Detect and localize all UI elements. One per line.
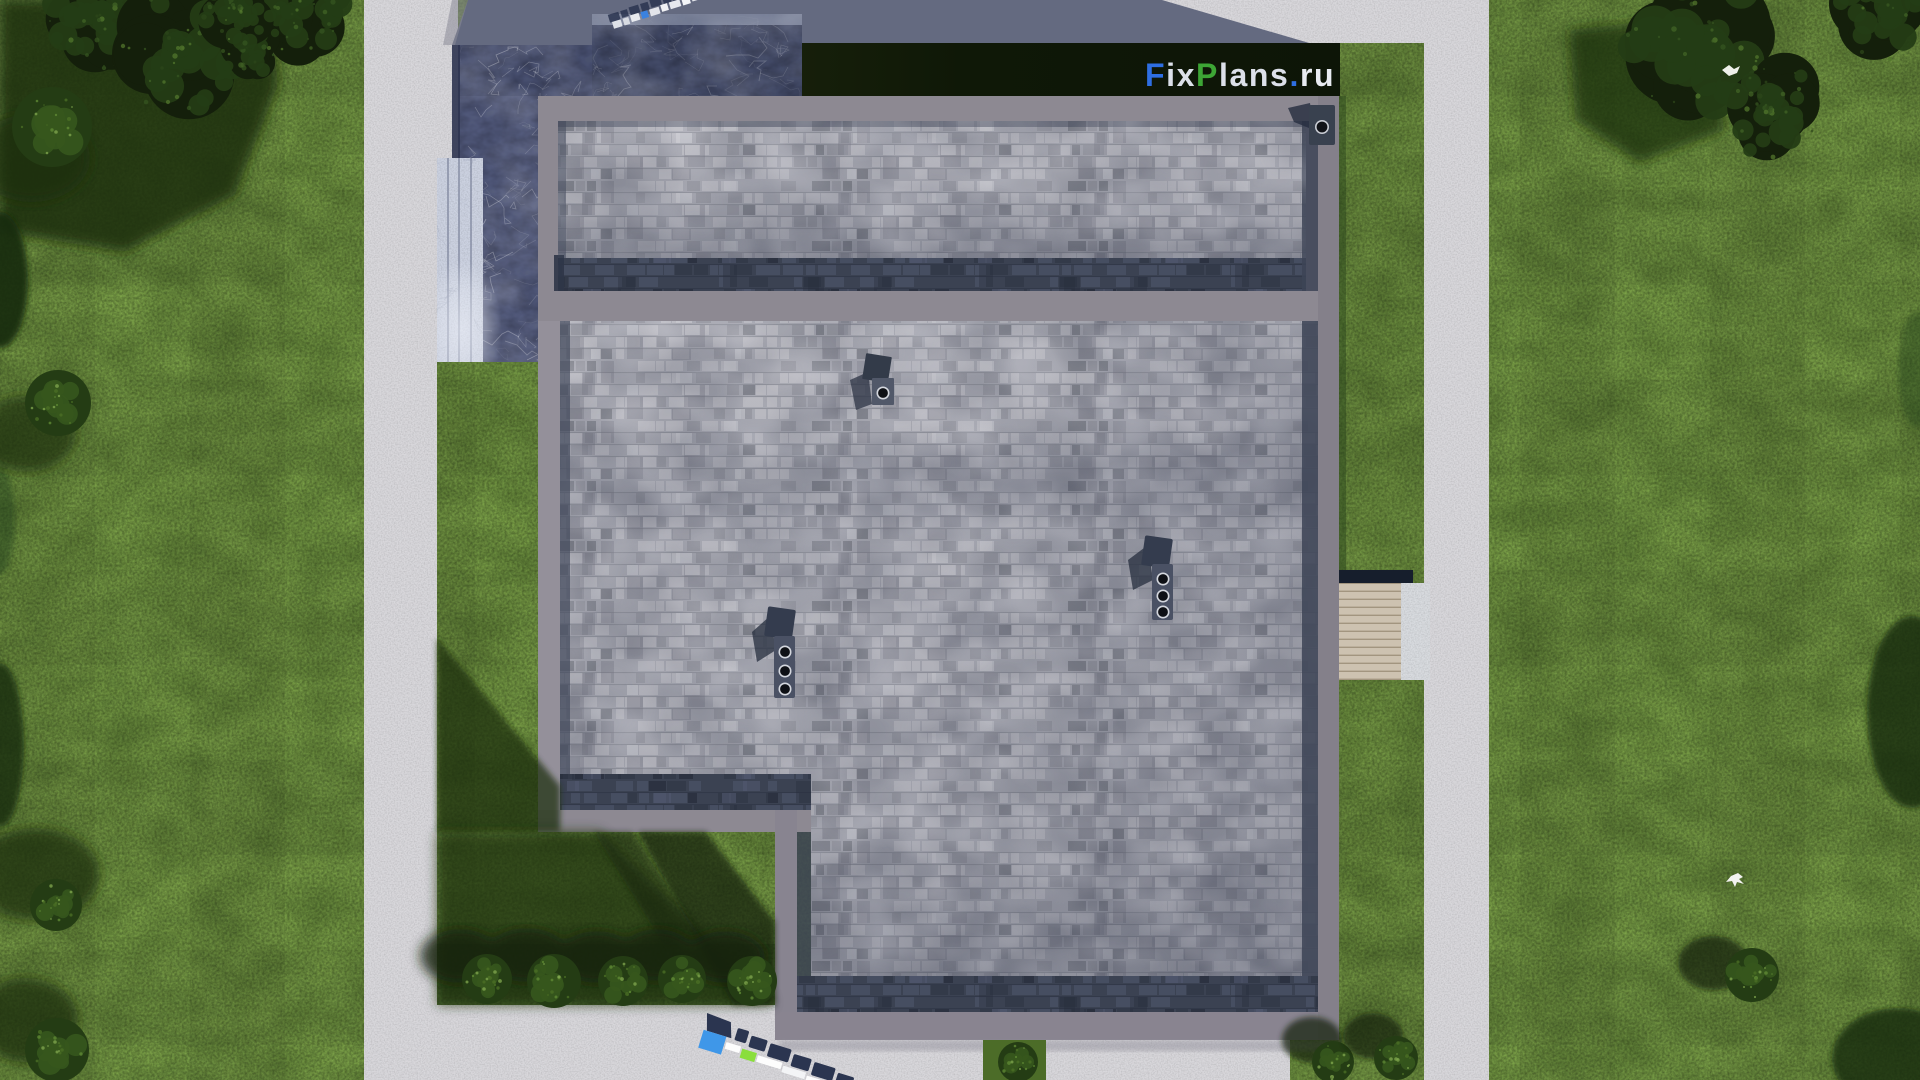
svg-text:FixPlans.ru: FixPlans.ru — [1145, 57, 1335, 93]
